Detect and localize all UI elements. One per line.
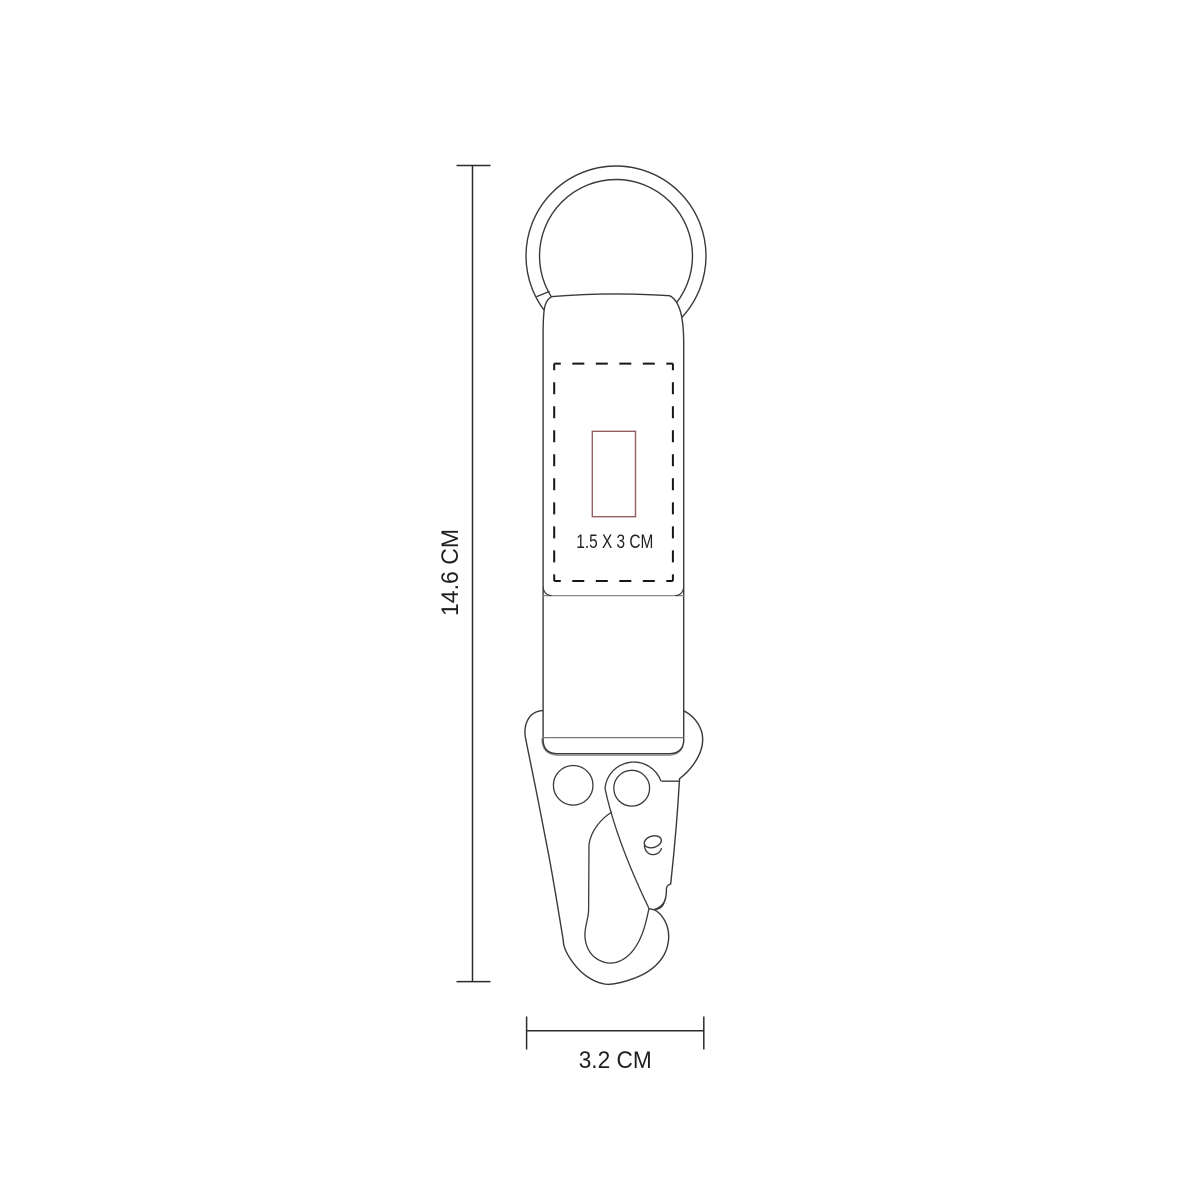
svg-text:1.5 X 3 CM: 1.5 X 3 CM — [576, 532, 653, 553]
svg-text:14.6 CM: 14.6 CM — [437, 529, 464, 616]
svg-text:3.2 CM: 3.2 CM — [579, 1047, 652, 1074]
